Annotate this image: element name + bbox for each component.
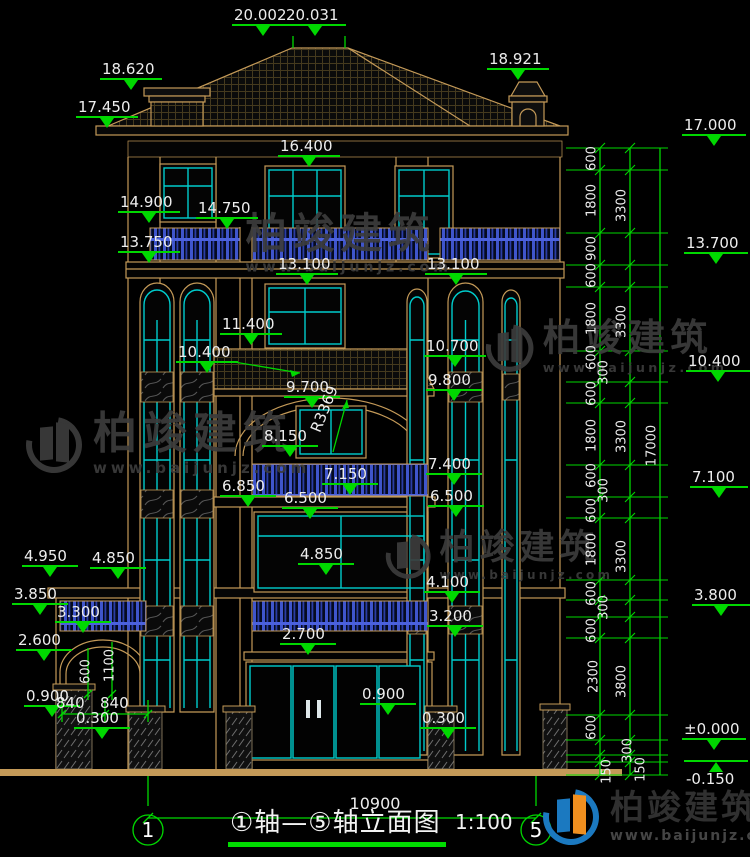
- elevation-value: 3.800: [692, 588, 737, 604]
- elevation-value: 17.000: [682, 118, 737, 134]
- company-name: 柏竣建筑: [610, 791, 750, 825]
- elevation-marker: -0.150: [684, 760, 748, 788]
- elevation-value: 6.500: [428, 489, 473, 505]
- elevation-triangle-icon: [319, 565, 333, 575]
- elevation-marker: 4.850: [90, 551, 146, 579]
- dimension-chain-value: 3800: [616, 659, 629, 705]
- elevation-marker: 6.850: [220, 479, 276, 507]
- elevation-value: 2.600: [16, 633, 61, 649]
- elevation-value: 10.400: [176, 345, 231, 361]
- elevation-marker: 4.850: [298, 547, 354, 575]
- elevation-value: 11.400: [220, 317, 275, 333]
- dimension-chain-value: 1100: [104, 643, 117, 689]
- elevation-marker: 17.000: [682, 118, 746, 146]
- elevation-marker: 16.400: [278, 139, 340, 167]
- dimension-chain-value: 600: [586, 136, 599, 182]
- elevation-value: 20.002: [232, 8, 287, 24]
- porch-dim-840-left: 840: [56, 694, 85, 712]
- elevation-value: 3.850: [12, 587, 57, 603]
- elevation-triangle-icon: [445, 593, 459, 603]
- axis-bubble-1: 1: [133, 818, 163, 842]
- elevation-triangle-icon: [381, 705, 395, 715]
- elevation-value: 14.750: [196, 201, 251, 217]
- elevation-marker: 0.300: [74, 711, 130, 739]
- elevation-triangle-icon: [200, 363, 214, 373]
- elevation-value: -0.150: [684, 772, 734, 788]
- elevation-marker: 7.100: [690, 470, 748, 498]
- elevation-triangle-icon: [343, 485, 357, 495]
- porch-dim-840-right: 840: [100, 694, 129, 712]
- elevation-marker: 18.921: [487, 52, 549, 80]
- elevation-triangle-icon: [142, 213, 156, 223]
- elevation-marker: 0.300: [420, 711, 476, 739]
- elevation-triangle-icon: [301, 645, 315, 655]
- elevation-value: 0.300: [420, 711, 465, 727]
- elevation-triangle-icon: [441, 729, 455, 739]
- elevation-value: 7.400: [426, 457, 471, 473]
- elevation-triangle-icon: [714, 606, 728, 616]
- cad-elevation-screenshot: 柏竣建筑www.baijunjz.com 柏竣建筑www.baijunjz.co…: [0, 0, 750, 857]
- elevation-marker: ±0.000: [682, 722, 746, 750]
- elevation-marker: 3.800: [692, 588, 750, 616]
- dimension-chain-value: 2300: [588, 654, 601, 700]
- elevation-marker: 11.400: [220, 317, 282, 345]
- elevation-marker: 14.750: [196, 201, 258, 229]
- elevation-value: 9.800: [426, 373, 471, 389]
- elevation-marker: 3.300: [55, 605, 111, 633]
- elevation-marker: 18.620: [100, 62, 162, 90]
- elevation-triangle-icon: [37, 651, 51, 661]
- elevation-triangle-icon: [95, 729, 109, 739]
- elevation-marker: 17.450: [76, 100, 138, 128]
- elevation-value: 2.700: [280, 627, 325, 643]
- elevation-triangle-icon: [100, 118, 114, 128]
- elevation-value: 3.300: [55, 605, 100, 621]
- company-url: www.baijunjz.com: [610, 828, 750, 844]
- dimension-chain-value: 1800: [586, 527, 599, 573]
- baijun-logo-icon: [542, 788, 600, 846]
- elevation-value: ±0.000: [682, 722, 740, 738]
- elevation-marker: 13.100: [425, 257, 487, 285]
- elevation-value: 16.400: [278, 139, 333, 155]
- elevation-marker: 13.750: [118, 235, 180, 263]
- elevation-triangle-icon: [308, 26, 322, 36]
- elevation-triangle-icon: [241, 497, 255, 507]
- elevation-triangle-icon: [283, 447, 297, 457]
- drawing-scale: 1:100: [455, 810, 513, 834]
- elevation-marker: 3.200: [427, 609, 483, 637]
- elevation-triangle-icon: [302, 157, 316, 167]
- elevation-value: 4.100: [424, 575, 469, 591]
- elevation-marker: 9.800: [426, 373, 482, 401]
- elevation-triangle-icon: [256, 26, 270, 36]
- elevation-value: 4.850: [298, 547, 343, 563]
- elevation-marker: 8.150: [262, 429, 318, 457]
- elevation-marker: 2.700: [280, 627, 336, 655]
- elevation-value: 7.100: [690, 470, 735, 486]
- elevation-value: 13.700: [684, 236, 739, 252]
- dimension-chain-value: 3300: [616, 299, 629, 345]
- dimension-chain-value: 600: [80, 649, 93, 695]
- elevation-value: 10.700: [424, 339, 479, 355]
- dimension-chain-value: 3300: [616, 414, 629, 460]
- elevation-triangle-icon: [124, 80, 138, 90]
- elevation-triangle-icon: [449, 275, 463, 285]
- elevation-triangle-icon: [707, 740, 721, 750]
- dimension-chain-value: 3300: [616, 534, 629, 580]
- elevation-value: 6.850: [220, 479, 265, 495]
- dimension-chain-value: 3300: [616, 183, 629, 229]
- dimension-chain-value: 150: [635, 747, 648, 793]
- elevation-value: 4.950: [22, 549, 67, 565]
- elevation-value: 13.100: [425, 257, 480, 273]
- elevation-triangle-icon: [76, 623, 90, 633]
- elevation-marker: 7.400: [426, 457, 482, 485]
- elevation-triangle-icon: [711, 372, 725, 382]
- elevation-value: 14.900: [118, 195, 173, 211]
- elevation-triangle-icon: [111, 569, 125, 579]
- elevation-value: 3.200: [427, 609, 472, 625]
- elevation-triangle-icon: [43, 567, 57, 577]
- elevation-value: 0.900: [360, 687, 405, 703]
- elevation-value: 0.300: [74, 711, 119, 727]
- elevation-triangle-icon: [707, 136, 721, 146]
- elevation-value: 18.620: [100, 62, 155, 78]
- elevation-triangle-icon: [447, 475, 461, 485]
- dimension-chain-value: 600: [586, 705, 599, 751]
- drawing-title: ①轴—⑤轴立面图: [230, 802, 441, 839]
- elevation-triangle-icon: [142, 253, 156, 263]
- elevation-triangle-icon: [447, 391, 461, 401]
- elevation-triangle-icon: [244, 335, 258, 345]
- elevation-triangle-icon: [300, 275, 314, 285]
- elevation-triangle-icon: [448, 627, 462, 637]
- elevation-triangle-icon: [511, 70, 525, 80]
- dimension-chain-value: 600: [586, 608, 599, 654]
- company-logo: 柏竣建筑www.baijunjz.com: [542, 788, 750, 846]
- dimension-chain-value: 17000: [646, 423, 659, 469]
- elevation-triangle-icon: [448, 357, 462, 367]
- elevation-triangle-icon: [449, 507, 463, 517]
- elevation-triangle-icon: [709, 254, 723, 264]
- dimension-chain-value: 1800: [586, 178, 599, 224]
- elevation-value: 10.400: [686, 354, 741, 370]
- elevation-triangle-icon: [220, 219, 234, 229]
- elevation-marker: 20.031: [284, 8, 346, 36]
- elevation-value: 6.500: [282, 491, 327, 507]
- elevation-value: 8.150: [262, 429, 307, 445]
- elevation-triangle-icon: [712, 488, 726, 498]
- elevation-triangle-icon: [33, 605, 47, 615]
- elevation-value: 4.850: [90, 551, 135, 567]
- elevation-marker: 4.100: [424, 575, 480, 603]
- elevation-marker: 6.500: [282, 491, 338, 519]
- elevation-value: 13.750: [118, 235, 173, 251]
- elevation-marker: 13.700: [684, 236, 748, 264]
- elevation-marker: 10.400: [686, 354, 750, 382]
- elevation-value: 7.150: [322, 467, 367, 483]
- elevation-marker: 13.100: [276, 257, 338, 285]
- elevation-marker: 10.700: [424, 339, 486, 367]
- elevation-marker: 4.950: [22, 549, 78, 577]
- elevation-marker: 6.500: [428, 489, 484, 517]
- dimension-chain-value: 600: [586, 371, 599, 417]
- dimension-chain-value: 600: [586, 253, 599, 299]
- elevation-value: 13.100: [276, 257, 331, 273]
- elevation-marker: 10.400: [176, 345, 238, 373]
- annotation-layer: 10900 R3369 840 840 ①轴—⑤轴立面图 1:100 1 5 2…: [0, 0, 750, 857]
- elevation-value: 18.921: [487, 52, 542, 68]
- elevation-marker: 0.900: [360, 687, 416, 715]
- elevation-value: 17.450: [76, 100, 131, 116]
- elevation-marker: 2.600: [16, 633, 72, 661]
- elevation-triangle-icon: [303, 509, 317, 519]
- elevation-marker: 14.900: [118, 195, 180, 223]
- elevation-value: 20.031: [284, 8, 339, 24]
